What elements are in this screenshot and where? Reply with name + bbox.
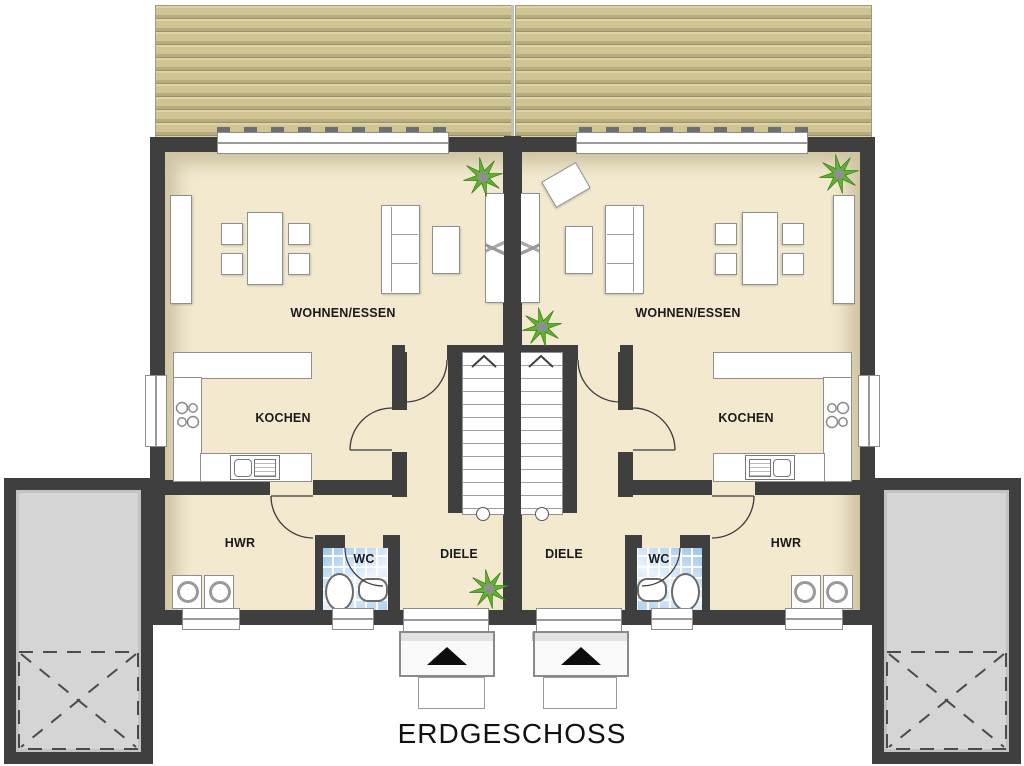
sofa	[605, 205, 644, 294]
chair	[715, 223, 737, 245]
chair	[221, 253, 243, 275]
side-window	[858, 375, 880, 447]
kitchen-sink	[745, 455, 795, 480]
stairs	[462, 352, 505, 515]
wall	[165, 480, 270, 495]
washing-machine	[172, 575, 202, 609]
plant-icon	[462, 156, 504, 198]
room-label-utility-right: HWR	[771, 536, 801, 550]
stair-up-arrow-icon	[471, 354, 497, 368]
wall	[680, 535, 710, 548]
chair	[288, 253, 310, 275]
garage-right	[872, 478, 1021, 764]
porch-step	[535, 633, 627, 641]
wardrobe	[518, 193, 540, 303]
wall	[618, 480, 712, 495]
stair-post	[476, 507, 490, 521]
wall	[755, 480, 860, 495]
wall	[313, 480, 407, 495]
stair-up-arrow-icon	[528, 354, 554, 368]
terrace-divider	[511, 5, 514, 137]
room-label-kitchen-right: KOCHEN	[718, 411, 773, 425]
wall	[618, 352, 633, 410]
kitchen-counter	[173, 352, 312, 379]
washbasin	[358, 578, 388, 602]
dryer	[791, 575, 821, 609]
toilet	[325, 573, 354, 611]
wall	[563, 345, 577, 513]
room-label-hall-left: DIELE	[440, 547, 478, 561]
porch-step	[401, 633, 493, 641]
sink-drainer	[254, 459, 276, 477]
entrance-arrow-icon	[427, 647, 467, 665]
dining-table	[247, 212, 283, 285]
kitchen-counter	[713, 352, 852, 379]
room-label-living-left: WOHNEN/ESSEN	[290, 306, 395, 320]
doormat	[543, 677, 617, 709]
garage-left	[4, 478, 153, 764]
kitchen-sink	[230, 455, 280, 480]
wall	[150, 137, 165, 610]
room-label-hall-right: DIELE	[545, 547, 583, 561]
window	[332, 608, 374, 630]
plant-icon	[521, 306, 563, 348]
room-label-wc-right: WC	[648, 552, 669, 566]
page-title: ERDGESCHOSS	[398, 718, 627, 750]
washbasin	[637, 578, 667, 602]
sideboard	[170, 195, 192, 304]
dining-table	[742, 212, 778, 285]
wall	[860, 137, 875, 610]
armchair	[565, 226, 593, 274]
entrance-door	[536, 608, 622, 632]
sofa	[381, 205, 420, 294]
entrance-arrow-icon	[561, 647, 601, 665]
side-window	[145, 375, 167, 447]
sink-basin	[234, 459, 252, 477]
window	[785, 608, 843, 630]
chair	[288, 223, 310, 245]
room-label-kitchen-left: KOCHEN	[255, 411, 310, 425]
window	[651, 608, 693, 630]
sliding-door	[217, 132, 449, 154]
plant-icon	[818, 153, 860, 195]
floor-plan: WOHNEN/ESSEN WOHNEN/ESSEN KOCHEN KOCHEN …	[0, 0, 1024, 766]
room-label-living-right: WOHNEN/ESSEN	[635, 306, 740, 320]
wall	[315, 535, 345, 548]
wall	[448, 345, 462, 513]
entrance-porch-right	[533, 631, 629, 677]
room-label-wc-left: WC	[353, 552, 374, 566]
wall	[392, 352, 407, 410]
cooktop-icon	[174, 399, 200, 431]
sink-basin	[773, 459, 791, 477]
cooktop-icon	[825, 399, 851, 431]
party-wall	[504, 136, 521, 625]
wall	[388, 535, 400, 610]
terrace-right	[515, 5, 872, 138]
entrance-porch-left	[399, 631, 495, 677]
sideboard	[833, 195, 855, 304]
stairs	[520, 352, 563, 515]
doormat	[418, 677, 485, 709]
stair-post	[535, 507, 549, 521]
chair	[782, 253, 804, 275]
sliding-door	[576, 132, 808, 154]
chair	[715, 253, 737, 275]
garage-door-cross-icon	[885, 650, 1008, 751]
plant-icon	[468, 568, 510, 610]
garage-door-cross-icon	[17, 650, 140, 751]
chair	[221, 223, 243, 245]
dryer	[204, 575, 234, 609]
chair	[782, 223, 804, 245]
toilet	[671, 573, 700, 611]
armchair	[432, 226, 460, 274]
entrance-door	[403, 608, 489, 632]
sink-drainer	[749, 459, 771, 477]
washing-machine	[823, 575, 853, 609]
wall	[625, 535, 637, 610]
room-label-utility-left: HWR	[225, 536, 255, 550]
window	[182, 608, 240, 630]
terrace-left	[155, 5, 512, 138]
